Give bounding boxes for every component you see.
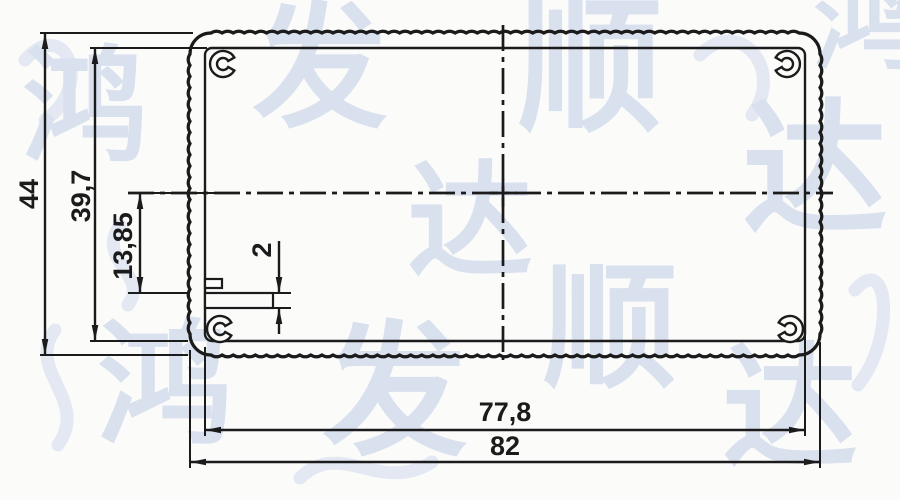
watermark-stroke	[855, 280, 884, 385]
label-inner-width: 77,8	[479, 397, 532, 427]
screw-boss-top-right	[776, 51, 800, 77]
watermark-character: 发	[323, 311, 468, 473]
watermark-character: 达	[743, 89, 888, 251]
watermark-layer: 鸿发顺达达顺鸿发达鸿	[23, 0, 900, 484]
slot-upper-tab	[205, 279, 222, 288]
label-overall-height: 44	[14, 179, 44, 209]
watermark-stroke	[47, 330, 67, 445]
extrusion-profile-technical-drawing: 鸿发顺达达顺鸿发达鸿	[0, 0, 900, 500]
watermark-character: 发	[253, 0, 388, 144]
outer-edge-bottom	[211, 355, 799, 357]
label-inner-height: 39,7	[66, 170, 96, 223]
drawing-canvas: 鸿发顺达达顺鸿发达鸿	[0, 0, 900, 500]
watermark-character: 顺	[543, 253, 678, 404]
slot-plate	[205, 293, 273, 308]
watermark-character: 鸿	[23, 38, 148, 177]
centerlines	[128, 25, 833, 360]
watermark-character: 鸿	[813, 0, 900, 83]
label-overall-width: 82	[490, 431, 520, 461]
label-slot-offset: 13,85	[108, 212, 138, 280]
watermark-character: 顺	[518, 0, 663, 149]
watermark-character: 达	[408, 153, 533, 292]
screw-boss-top-left	[210, 51, 234, 77]
pcb-slot-ribs	[205, 279, 273, 308]
label-slot-thickness: 2	[247, 242, 277, 257]
outer-edge-top	[211, 31, 799, 33]
screw-boss-bottom-right	[779, 316, 803, 342]
